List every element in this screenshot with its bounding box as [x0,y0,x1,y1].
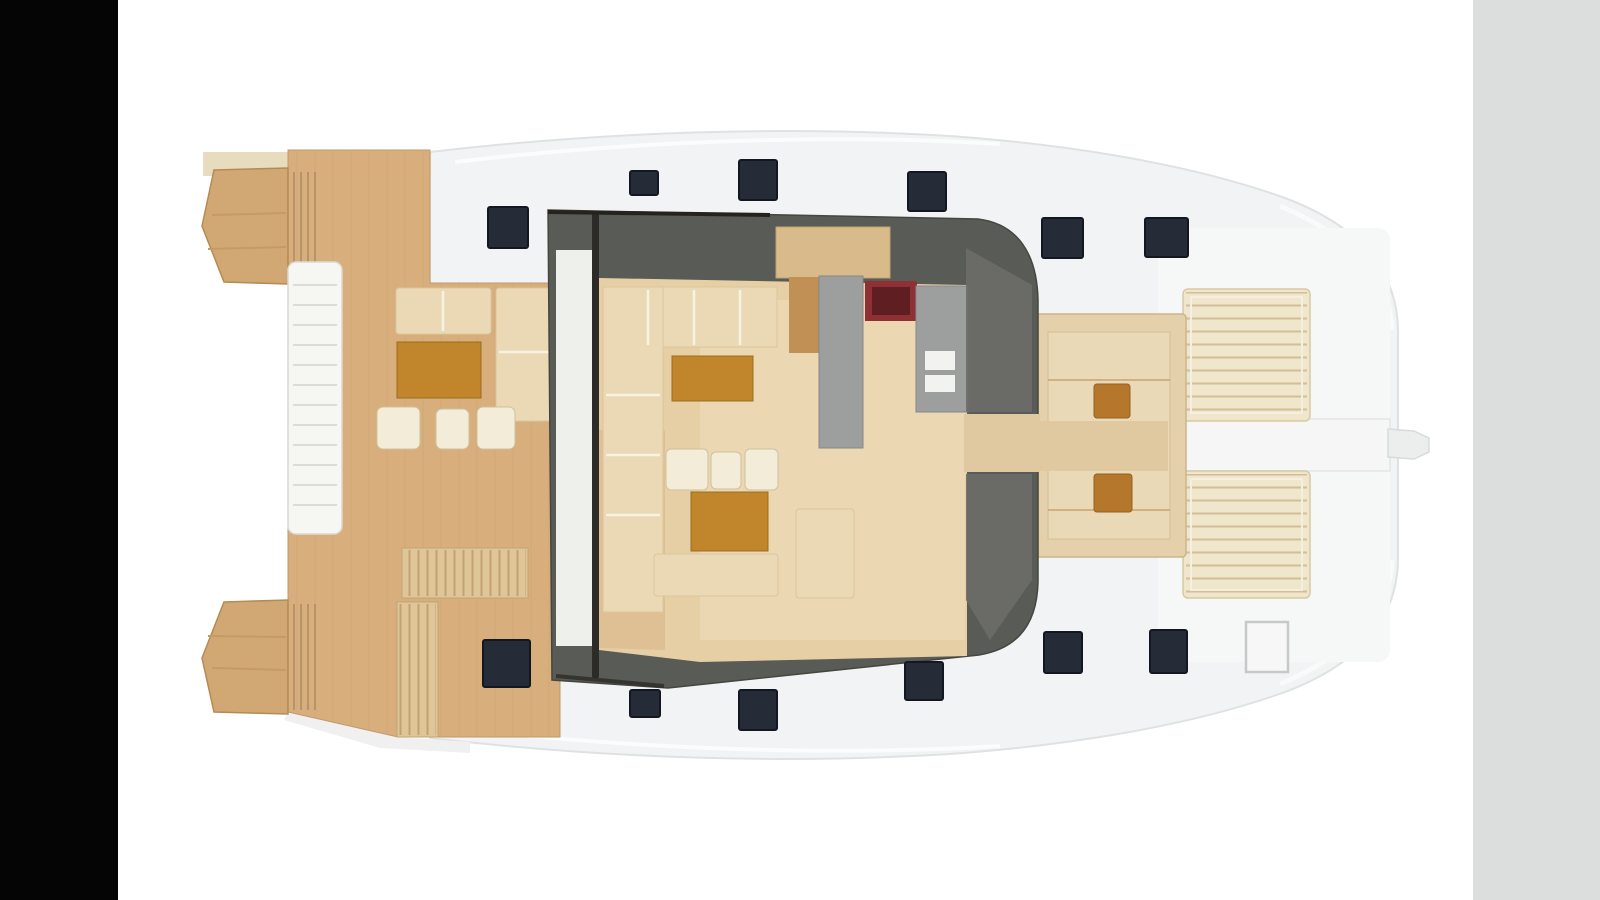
letterbox-right-bar [1473,0,1600,900]
gangway-base [288,262,342,534]
galley-drawer-1 [925,351,955,370]
dining-chair-1 [666,449,708,490]
hatch-top-1 [488,207,528,248]
forward-table-top [1094,384,1130,418]
coffee-table [672,356,753,401]
catamaran-deck-plan [202,131,1429,759]
deck-plan-canvas [0,0,1600,900]
saloon-aft-wall [592,212,599,678]
dining-chair-3 [745,449,778,490]
gangway [288,262,342,534]
sunpad-bottom-slats [1186,474,1307,595]
dining-chair-2 [711,452,741,489]
stairs-treads [399,604,436,735]
transom-stairs [397,602,438,737]
sunpad-top-slats [1186,292,1307,418]
galley-drawer-2 [925,375,955,392]
hatch-top-4 [908,172,946,211]
hatch-top-6 [1145,218,1188,257]
saloon-side-passage [556,250,592,646]
sunpad-bottom [1183,471,1310,598]
aft-stool-3 [477,407,515,449]
letterbox-left-bar [0,0,118,900]
sunpad-top [1183,289,1310,421]
deck-locker-hatch [1246,622,1288,672]
bow-center-walkway [1165,419,1390,471]
dining-bench-east [796,509,854,598]
aft-deck-table [397,342,481,398]
galley-forward-cabinet [776,227,890,278]
dining-table [691,492,768,551]
galley-wood-cabinet [789,277,820,353]
hatch-top-3 [739,160,777,200]
galley-island [819,276,863,448]
galley-stove-top [872,287,910,315]
cockpit-walkway [1030,421,1168,471]
galley-counter [916,286,968,412]
hatch-bottom-4 [905,662,943,700]
aft-slatted-bench [402,548,528,598]
dining-bench-south [654,554,778,596]
hatch-bottom-5 [1044,632,1082,673]
hatch-bottom-6 [1150,630,1187,673]
hatch-bottom-2 [630,690,660,717]
hatch-top-2 [630,171,658,195]
hatch-bottom-3 [739,690,777,730]
saloon [548,210,1040,688]
forward-cockpit [1030,314,1186,557]
aft-stool-1 [377,407,420,449]
aft-stool-2 [436,409,469,449]
hatch-top-5 [1042,218,1083,258]
saloon-bow-door-passage [964,414,1040,472]
hatch-bottom-1 [483,640,530,687]
forward-table-bottom [1094,474,1132,512]
step-line [208,636,286,637]
aft-bench-slats [404,550,526,596]
